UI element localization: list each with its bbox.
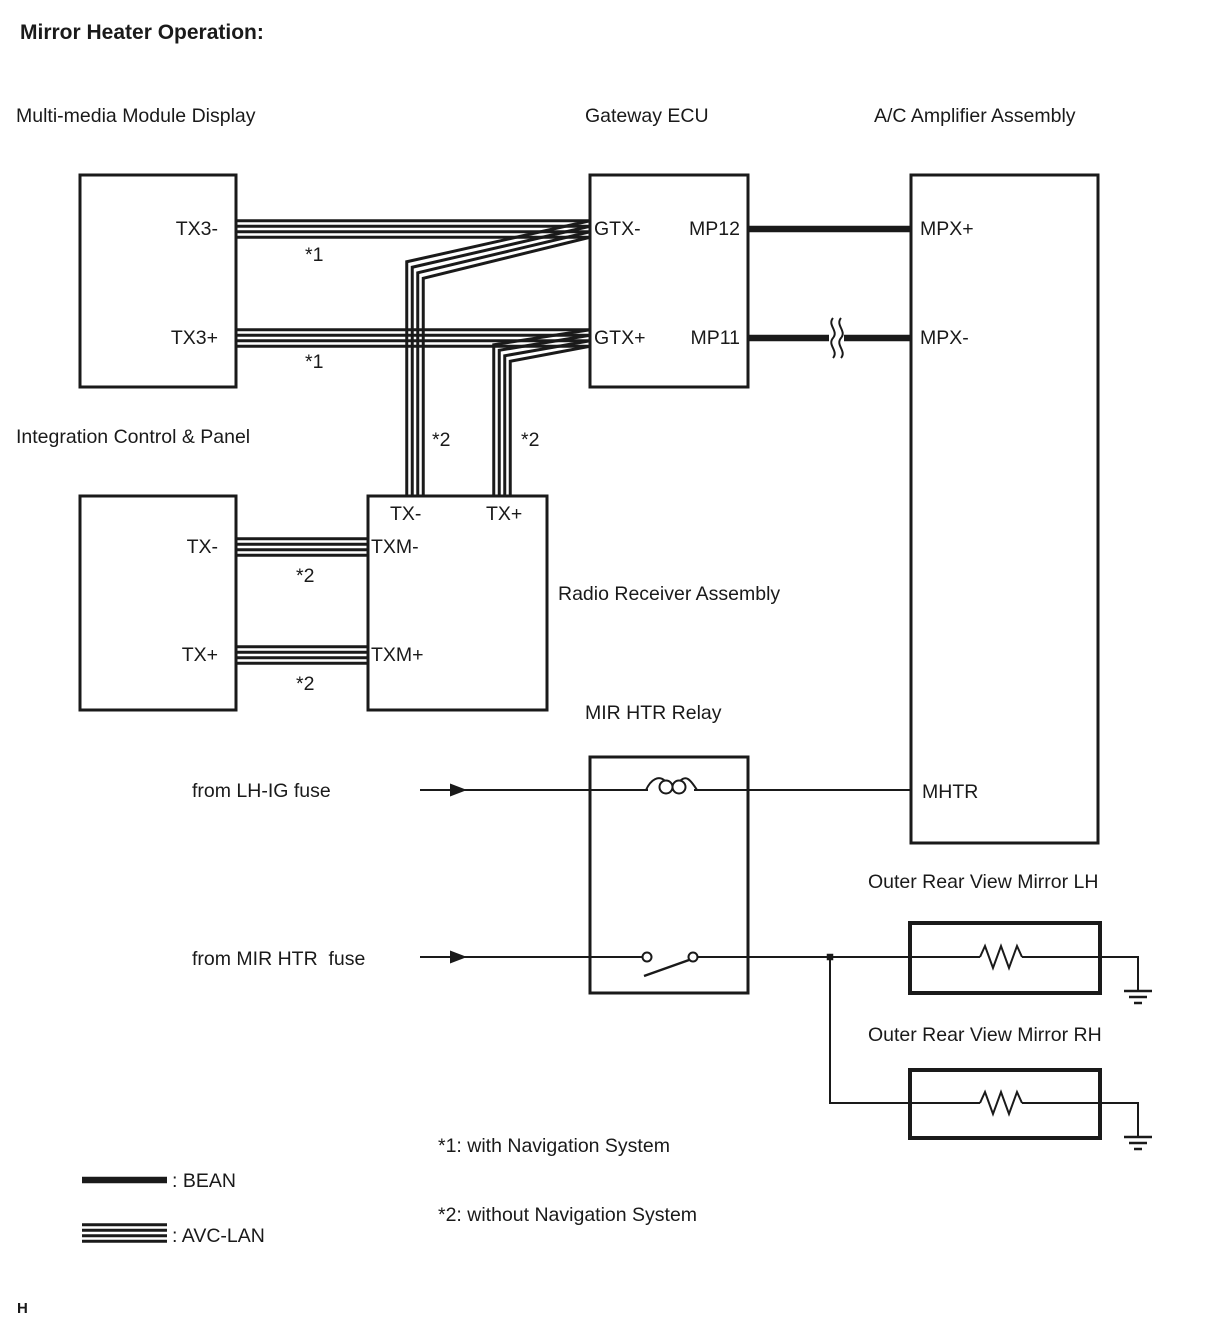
mirror-lh-label: Outer Rear View Mirror LH (868, 871, 1098, 893)
pin-mp11: MP11 (691, 327, 741, 349)
pin-mhtr: MHTR (922, 781, 978, 803)
legend-avc-lan-label: : AVC-LAN (172, 1225, 265, 1247)
bean-wire-mp11-to-mpx-minus (748, 318, 911, 358)
avc-lan-bundle-tx-minus-to-txm-minus (236, 539, 368, 556)
mir-htr-relay-label: MIR HTR Relay (585, 702, 722, 724)
pin-tx3-minus: TX3- (176, 218, 218, 240)
gateway-label: Gateway ECU (585, 105, 709, 127)
legend-avc-lan-lines-icon (82, 1225, 167, 1242)
wire-break-icon (839, 318, 842, 358)
note-without-navigation: *2: without Navigation System (438, 1204, 697, 1226)
arrow-right-icon (450, 784, 467, 797)
wire-tag-2: *2 (521, 429, 539, 451)
footer-page-mark: H (17, 1300, 28, 1317)
wire-tag-1: *1 (305, 351, 323, 373)
gateway-ecu-box (590, 175, 748, 387)
legend-bean-label: : BEAN (172, 1170, 236, 1192)
legend: : BEAN : AVC-LAN (82, 1170, 265, 1247)
pin-mpx-plus: MPX+ (920, 218, 974, 240)
source-mir-htr-fuse: from MIR HTR fuse (192, 948, 365, 970)
avc-lan-line (423, 237, 590, 496)
wiring-diagram-canvas: Mirror Heater Operation: Multi-media Mod… (0, 0, 1210, 1328)
switch-contact (689, 953, 698, 962)
wiring-diagram-page: Mirror Heater Operation: Multi-media Mod… (0, 0, 1210, 1328)
mirror-rh-label: Outer Rear View Mirror RH (868, 1024, 1102, 1046)
radio-receiver-box (368, 496, 547, 710)
page-title: Mirror Heater Operation: (20, 21, 264, 44)
pin-txm-plus: TXM+ (371, 644, 424, 666)
source-lh-ig-fuse: from LH-IG fuse (192, 780, 331, 802)
pin-integration-tx-plus: TX+ (182, 644, 218, 666)
wire-break-icon (831, 318, 834, 358)
wire-tag-2: *2 (432, 429, 450, 451)
ac-amplifier-box (911, 175, 1098, 843)
pin-gtx-minus: GTX- (594, 218, 641, 240)
multimedia-label: Multi-media Module Display (16, 105, 256, 127)
radio-receiver-label: Radio Receiver Assembly (558, 583, 780, 605)
wire-tag-2: *2 (296, 673, 314, 695)
ground-icon (1124, 1137, 1152, 1149)
multimedia-module-box (80, 175, 236, 387)
arrow-right-icon (450, 951, 467, 964)
integration-panel-box (80, 496, 236, 710)
ac-amplifier-label: A/C Amplifier Assembly (874, 105, 1076, 127)
pin-gtx-plus: GTX+ (594, 327, 645, 349)
pin-tx3-plus: TX3+ (171, 327, 218, 349)
avc-lan-line (505, 341, 590, 496)
pin-integration-tx-minus: TX- (187, 536, 218, 558)
avc-lan-bundle-gtx-plus-to-radio-tx-plus (494, 330, 590, 496)
ground-icon (1124, 991, 1152, 1003)
pin-radio-tx-plus: TX+ (486, 503, 522, 525)
switch-contact (643, 953, 652, 962)
pin-mp12: MP12 (689, 218, 740, 240)
avc-lan-bundle-tx-plus-to-txm-plus (236, 647, 368, 664)
wire-tag-2: *2 (296, 565, 314, 587)
avc-lan-line (510, 346, 590, 496)
pin-txm-minus: TXM- (371, 536, 419, 558)
integration-panel-label: Integration Control & Panel (16, 426, 250, 448)
pin-mpx-minus: MPX- (920, 327, 969, 349)
wire-tag-1: *1 (305, 244, 323, 266)
pin-radio-tx-minus: TX- (390, 503, 421, 525)
note-with-navigation: *1: with Navigation System (438, 1135, 670, 1157)
component-boxes (80, 175, 1100, 1138)
avc-lan-bundle-tx3-minus-to-gtx-minus (236, 221, 590, 238)
